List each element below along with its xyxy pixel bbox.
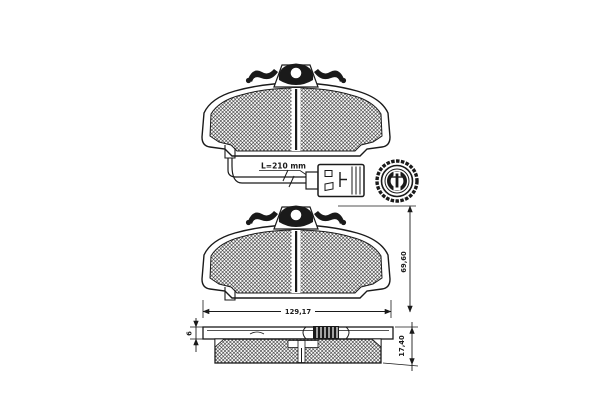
pad-width-dimension: 129,17 — [203, 300, 391, 318]
pad-side-profile-view — [203, 326, 393, 363]
sensor-length-label: L=210 mm — [261, 162, 306, 171]
pad-thickness-label: 17,40 — [398, 335, 406, 357]
backplate-thickness-dimension: 6 — [186, 318, 205, 352]
pad-width-label: 129,17 — [285, 308, 311, 316]
drawing-canvas: L=210 mm 69,60 129,17 — [0, 0, 600, 400]
backplate-thickness-label: 6 — [186, 331, 194, 336]
pad-height-label: 69,60 — [400, 251, 408, 273]
pad-front-view-dimensioned — [202, 206, 390, 301]
pad-front-view-with-sensor — [202, 64, 390, 159]
brake-pad-technical-drawing: L=210 mm 69,60 129,17 — [0, 0, 600, 400]
sensor-plug-connector — [306, 165, 364, 197]
round-connector-end-view — [377, 161, 417, 201]
